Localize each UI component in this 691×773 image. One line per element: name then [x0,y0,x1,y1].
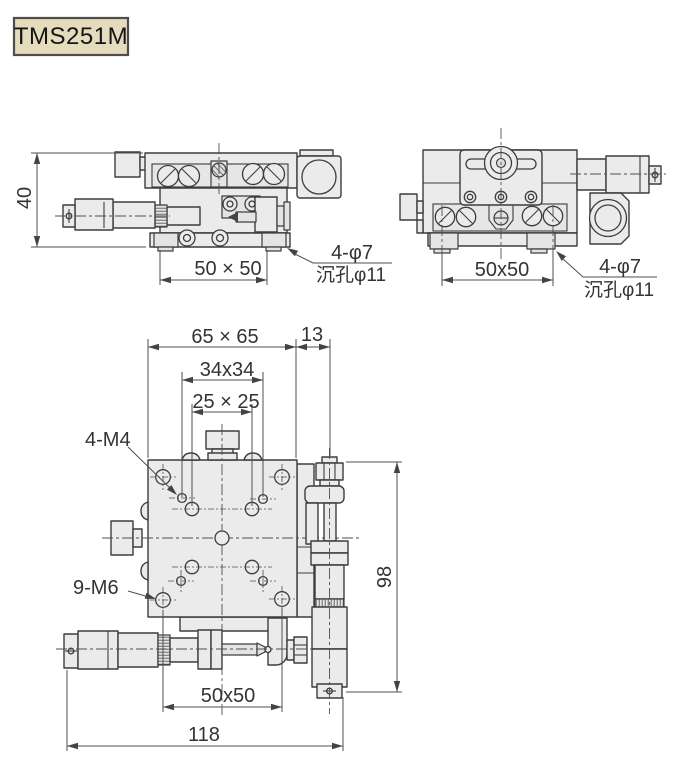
bracket [305,486,344,503]
side-view-right: 50x50 4-φ7 沉孔φ11 [400,128,666,301]
dim-50x50-side-left: 50 × 50 [160,250,267,285]
ring-bore [302,160,336,194]
callout-counterbore-text: 沉孔φ11 [584,279,654,301]
adjust-knob [115,152,140,177]
callout-9-M6: 9-M6 [73,577,156,599]
dim-13: 13 [296,324,330,456]
dim-50x50-text: 50x50 [475,259,530,281]
callout-counterbore-text: 沉孔φ11 [316,264,386,286]
dim-50x50-text: 50x50 [201,685,256,707]
dim-50x50-text: 50 × 50 [194,258,261,280]
side-view-left: 40 50 × 50 4-φ7 沉孔φ11 [14,143,392,286]
technical-drawing: TMS251M [0,0,691,773]
dim-25x25-text: 25 × 25 [192,391,259,413]
side-knob [400,194,417,220]
dim-13-text: 13 [301,324,323,346]
dim-98: 98 [346,462,402,692]
callout-9-M6-text: 9-M6 [73,577,119,599]
top-view: 65 × 65 13 34x34 25 × 25 [56,324,402,751]
dim-98-text: 98 [374,566,396,588]
top-knob [206,431,239,449]
dim-118-text: 118 [188,724,220,746]
dim-40-text: 40 [14,187,36,209]
dim-34x34-text: 34x34 [200,359,255,381]
model-label: TMS251M [14,18,128,55]
dim-50x50-side-right: 50x50 [442,252,553,286]
drawing-page: TMS251M [0,0,691,773]
callout-4-M4-text: 4-M4 [85,429,131,451]
callout-counterbore-right: 4-φ7 沉孔φ11 [556,251,657,301]
dim-118: 118 [67,670,343,751]
bracket [268,618,287,665]
hex-nut [294,637,307,663]
dim-65x65-text: 65 × 65 [191,326,258,348]
callout-holes-text: 4-φ7 [599,256,641,278]
model-label-text: TMS251M [14,23,128,50]
callout-holes-text: 4-φ7 [331,242,373,264]
micrometer-y-right-view [577,156,661,193]
callout-counterbore-left: 4-φ7 沉孔φ11 [287,242,392,286]
